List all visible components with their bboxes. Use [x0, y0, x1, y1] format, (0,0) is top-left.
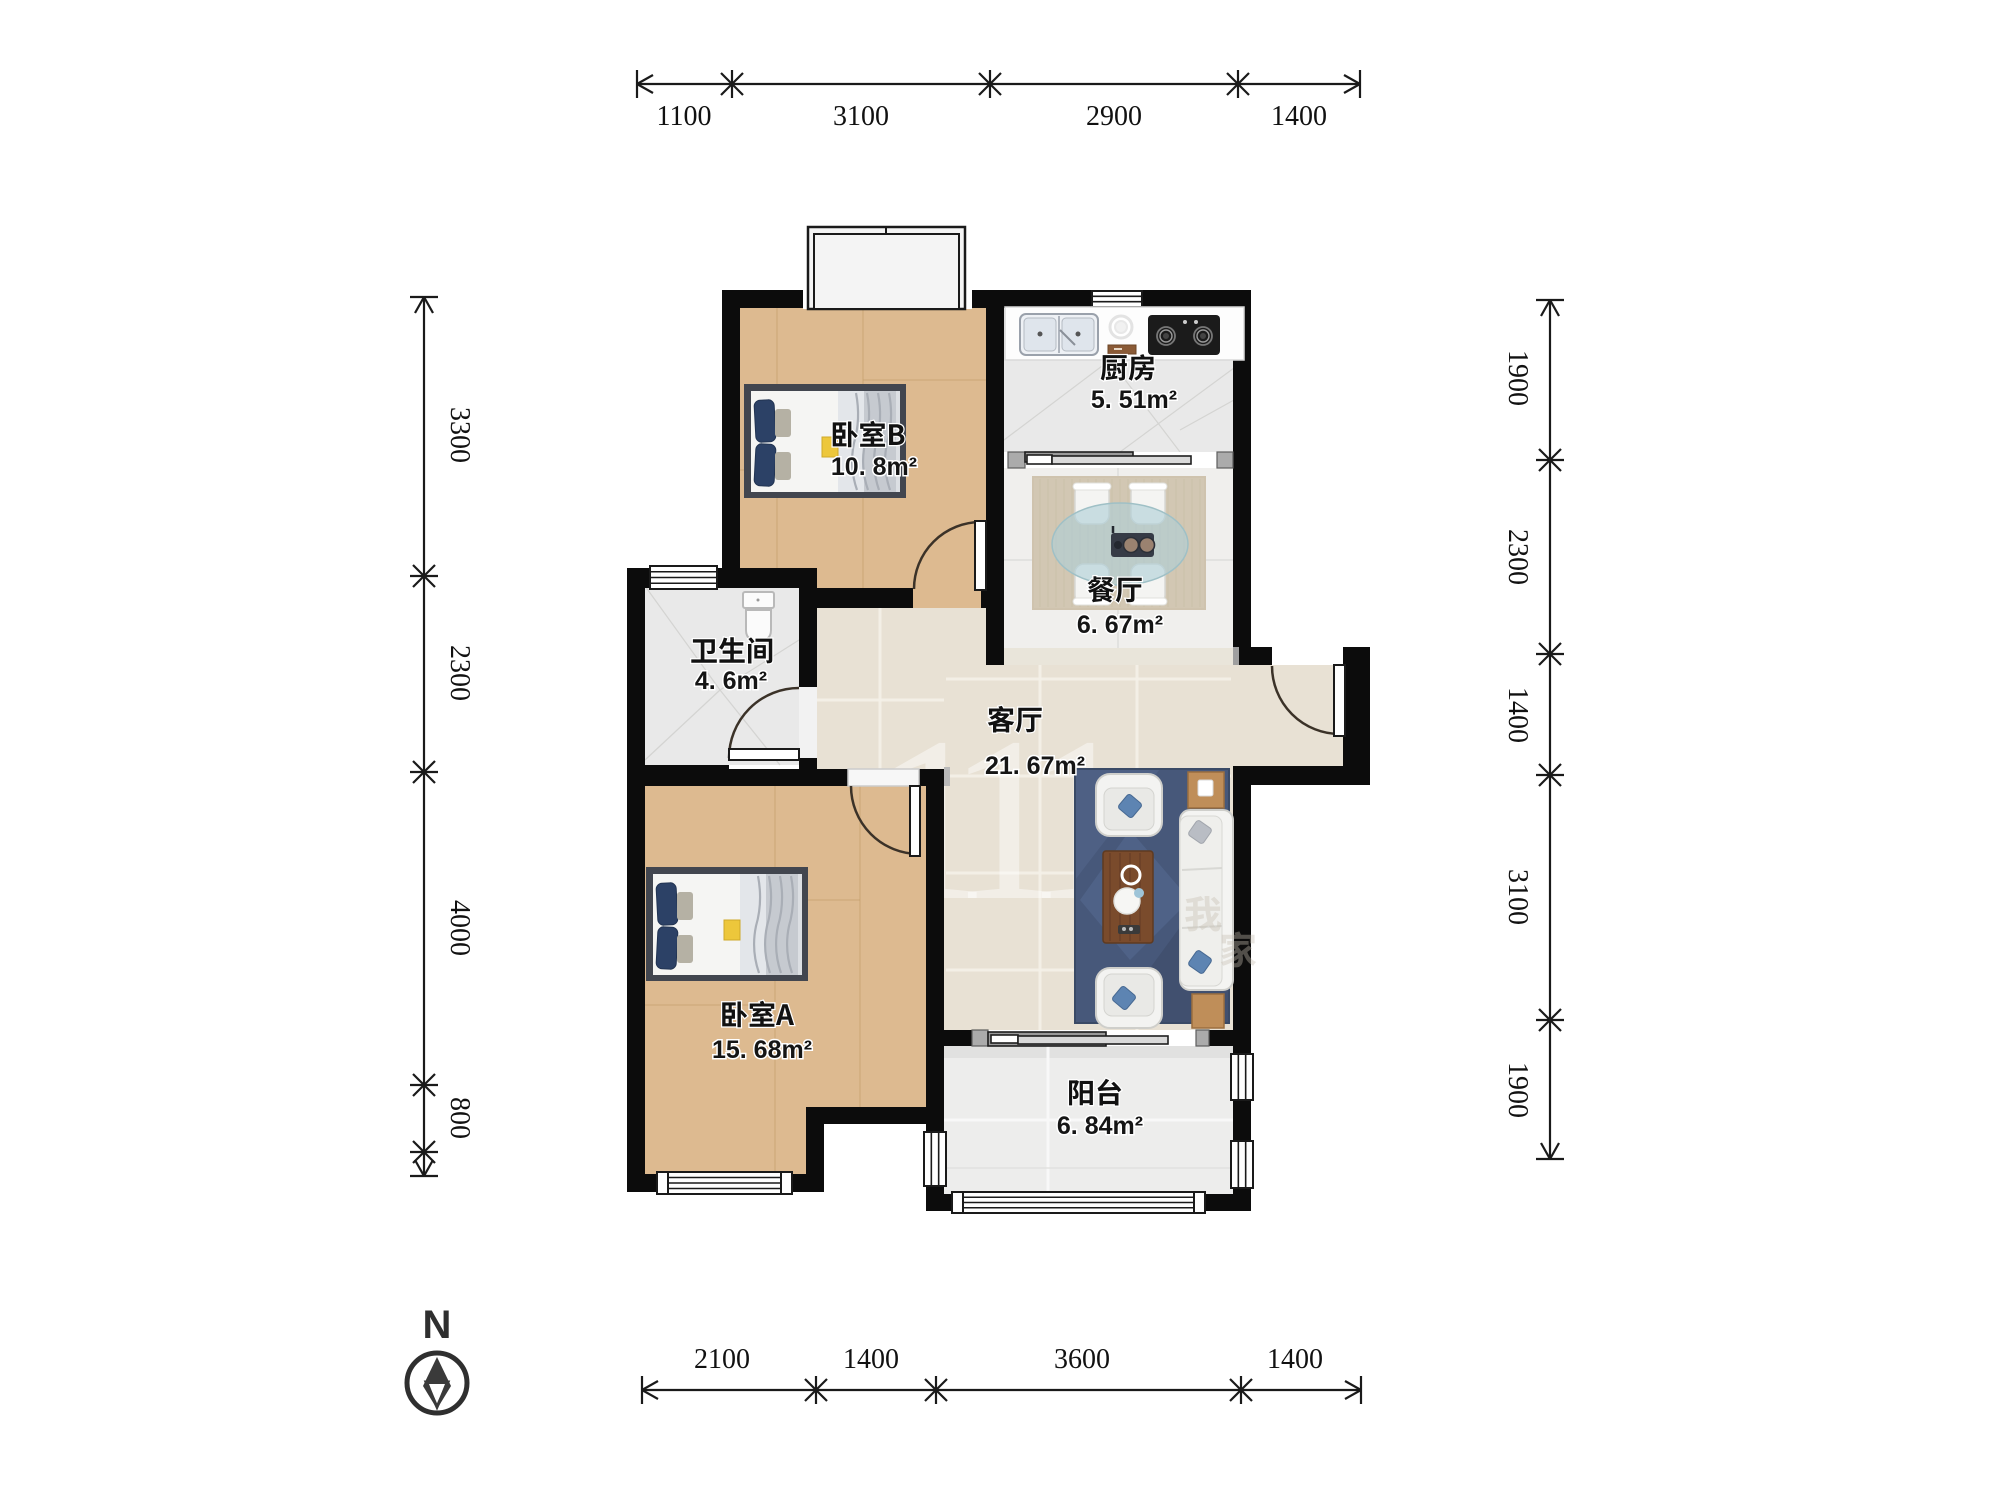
svg-text:21. 67m²: 21. 67m²: [985, 752, 1085, 780]
svg-text:1900: 1900: [1502, 1062, 1533, 1118]
svg-text:N: N: [423, 1303, 452, 1347]
svg-text:1400: 1400: [843, 1344, 899, 1375]
svg-text:15. 68m²: 15. 68m²: [712, 1036, 812, 1064]
svg-text:1400: 1400: [1502, 687, 1533, 743]
svg-text:3100: 3100: [833, 101, 889, 132]
svg-text:4. 6m²: 4. 6m²: [695, 667, 767, 695]
svg-text:5. 51m²: 5. 51m²: [1091, 386, 1177, 414]
svg-text:1900: 1900: [1502, 350, 1533, 406]
svg-text:6. 84m²: 6. 84m²: [1057, 1112, 1143, 1140]
svg-text:2900: 2900: [1086, 101, 1142, 132]
svg-text:1400: 1400: [1271, 101, 1327, 132]
svg-text:3300: 3300: [444, 407, 475, 463]
svg-text:10. 8m²: 10. 8m²: [831, 453, 917, 481]
svg-text:2100: 2100: [694, 1344, 750, 1375]
svg-text:1100: 1100: [657, 101, 712, 132]
svg-text:2300: 2300: [444, 645, 475, 701]
svg-text:800: 800: [444, 1097, 475, 1139]
svg-text:6. 67m²: 6. 67m²: [1077, 611, 1163, 639]
svg-text:3600: 3600: [1054, 1344, 1110, 1375]
svg-text:1400: 1400: [1267, 1344, 1323, 1375]
svg-text:3100: 3100: [1502, 869, 1533, 925]
svg-text:2300: 2300: [1502, 529, 1533, 585]
svg-text:4000: 4000: [444, 900, 475, 956]
